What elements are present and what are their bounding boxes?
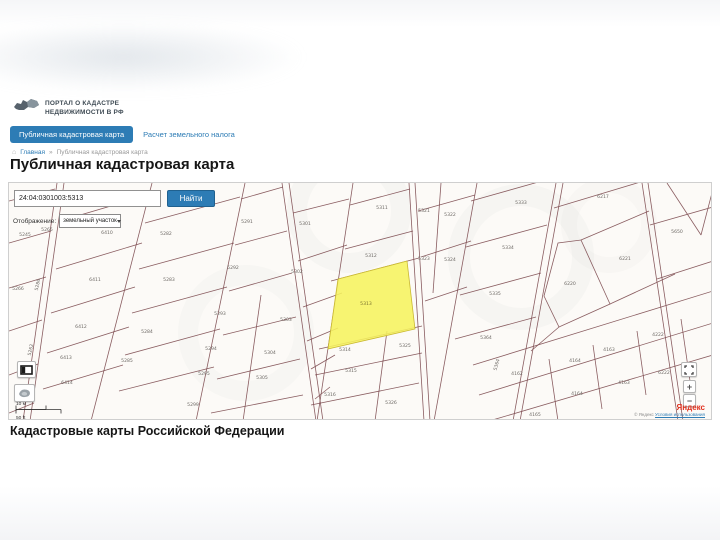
logo-text: ПОРТАЛ О КАДАСТРЕ НЕДВИЖИМОСТИ В РФ [45, 100, 124, 117]
chevron-down-icon [117, 220, 121, 223]
scale-imperial-label: 50 ft [16, 415, 26, 420]
parcel-label: 5315 [345, 368, 357, 374]
parcel-label: 6217 [597, 194, 609, 200]
parcel-label: 5302 [291, 269, 303, 275]
parcel-label: 5312 [365, 253, 377, 259]
zoom-in-button[interactable]: + [683, 380, 696, 393]
parcel-label: 5313 [360, 301, 372, 307]
parcel-label: 5294 [205, 346, 217, 352]
main-tabs: Публичная кадастровая карта Расчет земел… [10, 126, 235, 143]
parcel-label: 5301 [299, 221, 311, 227]
scale-metric-label: 10 м [16, 401, 26, 407]
parcel-label: 4163 [618, 380, 630, 386]
parcel-label: 5304 [264, 350, 276, 356]
parcel-label: 5314 [339, 347, 351, 353]
find-button[interactable]: Найти [167, 190, 215, 207]
footer-caption: Кадастровые карты Российской Федерации [10, 424, 284, 438]
map-mode-button[interactable] [17, 361, 36, 378]
display-mode-select[interactable]: земельный участок [59, 214, 121, 228]
parcel-label: 5324 [444, 257, 456, 263]
breadcrumb-current: Публичная кадастровая карта [57, 149, 148, 156]
parcel-label: 5305 [256, 375, 268, 381]
russia-map-icon [13, 97, 40, 120]
layers-icon [17, 387, 32, 399]
parcel-label: 6220 [564, 281, 576, 287]
scale-bar: 10 м 50 ft [14, 400, 69, 420]
page-title: Публичная кадастровая карта [10, 156, 234, 173]
home-icon: ⌂ [12, 149, 16, 156]
parcel-label: 5316 [324, 392, 336, 398]
parcel-label: 5266 [12, 286, 24, 292]
fullscreen-button[interactable] [681, 362, 697, 377]
display-mode-value: земельный участок [63, 218, 117, 224]
cadastral-number-input[interactable] [14, 190, 161, 207]
parcel-label: 4164 [571, 391, 583, 397]
parcel-label: 5333 [515, 200, 527, 206]
parcel-label: 5299 [187, 402, 199, 408]
parcel-label: 5323 [418, 256, 430, 262]
parcel-label: 5322 [444, 212, 456, 218]
tab-land-tax-calc[interactable]: Расчет земельного налога [143, 130, 235, 139]
fullscreen-icon [684, 365, 694, 375]
parcel-label: 5311 [376, 205, 388, 211]
parcel-label: 5285 [121, 358, 133, 364]
parcel-label: 5335 [489, 291, 501, 297]
map-search: Найти [14, 190, 215, 207]
parcel-label: 4164 [569, 358, 581, 364]
parcel-label: 4165 [529, 412, 541, 418]
display-mode-row: Отображение: земельный участок [13, 214, 121, 228]
parcel-label: 4222 [652, 332, 664, 338]
parcel-label: 5650 [671, 229, 683, 235]
parcel-label: 5245 [19, 232, 31, 238]
parcel-label: 6413 [60, 355, 72, 361]
parcel-label: 5293 [214, 311, 226, 317]
parcel-label: 5321 [418, 208, 430, 214]
parcel-label: 4163 [603, 347, 615, 353]
cadastral-map[interactable]: 5245526552665286526264106411641264136414… [8, 182, 712, 420]
display-mode-label: Отображение: [13, 218, 56, 225]
parcel-label: 5364 [480, 335, 492, 341]
copyright-text: © Яндекс [634, 412, 654, 417]
terms-of-use-link[interactable]: Условия использования [655, 412, 705, 417]
breadcrumb-separator: » [49, 149, 53, 156]
yandex-logo[interactable]: Яндекс [634, 404, 705, 411]
parcel-label: 5303 [280, 317, 292, 323]
breadcrumb-home-link[interactable]: Главная [20, 149, 45, 156]
breadcrumb: ⌂ Главная » Публичная кадастровая карта [12, 149, 148, 156]
parcel-label: 6222 [658, 370, 670, 376]
parcel-label: 6412 [75, 324, 87, 330]
parcel-label: 6414 [61, 380, 73, 386]
background-smudge [0, 22, 305, 92]
map-extent-icon [20, 365, 33, 375]
parcel-label: 5291 [241, 219, 253, 225]
parcel-label: 5292 [227, 265, 239, 271]
parcel-label: 6410 [101, 230, 113, 236]
parcel-label: 5326 [385, 400, 397, 406]
map-attribution: Яндекс © Яндекс Условия использования [634, 404, 705, 418]
page: ПОРТАЛ О КАДАСТРЕ НЕДВИЖИМОСТИ В РФ Публ… [0, 0, 720, 540]
parcel-label: 6221 [619, 256, 631, 262]
parcel-label: 5325 [399, 343, 411, 349]
parcel-label: 6411 [89, 277, 101, 283]
parcel-label: 4162 [511, 371, 523, 377]
parcel-label: 5284 [141, 329, 153, 335]
parcel-label: 5334 [502, 245, 514, 251]
parcel-label: 5295 [198, 371, 210, 377]
parcel-label: 5283 [163, 277, 175, 283]
tab-public-cadastral-map[interactable]: Публичная кадастровая карта [10, 126, 133, 143]
site-logo[interactable]: ПОРТАЛ О КАДАСТРЕ НЕДВИЖИМОСТИ В РФ [13, 97, 124, 120]
parcel-label: 5282 [160, 231, 172, 237]
